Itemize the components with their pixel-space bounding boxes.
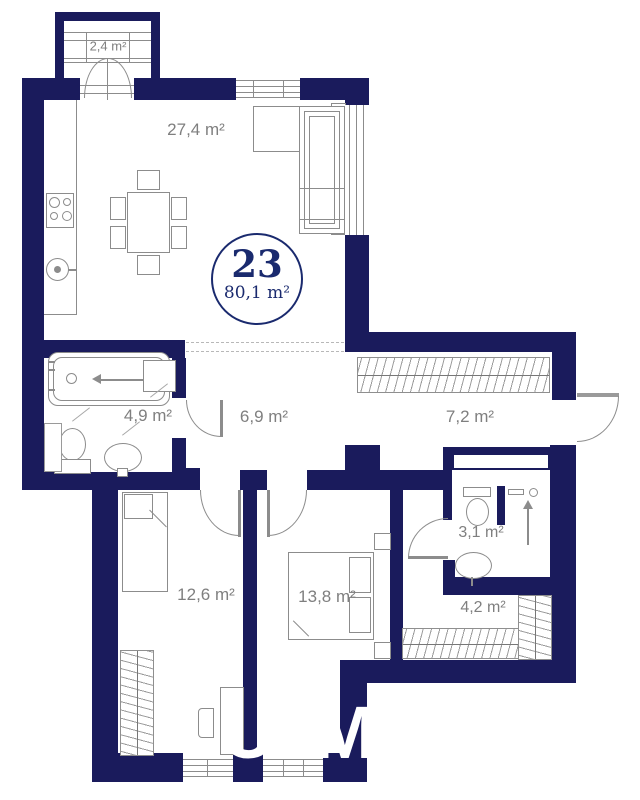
bathtub-arrowhead <box>92 374 101 384</box>
wall <box>134 78 238 100</box>
room-label-living: 27,4 m² <box>167 120 225 140</box>
kitchen-sink-drain <box>54 266 61 273</box>
wall <box>550 445 576 590</box>
room-label-bedroom2: 13,8 m² <box>298 587 356 607</box>
window <box>345 105 369 235</box>
wall <box>443 577 552 595</box>
window <box>236 78 300 100</box>
wardrobe-hatched <box>518 595 552 660</box>
wall <box>185 468 200 490</box>
wall <box>552 332 576 400</box>
wall <box>92 753 183 782</box>
room-label-wc: 3,1 m² <box>458 524 503 542</box>
shower-arrow <box>527 505 529 545</box>
room-label-hallway: 6,9 m² <box>240 407 288 427</box>
wall-niche <box>454 455 548 468</box>
wall <box>172 438 186 472</box>
tile-mark <box>72 407 90 421</box>
room-label-corridor: 7,2 m² <box>446 407 494 427</box>
glazing-mullion <box>86 32 87 62</box>
window-line <box>349 105 350 235</box>
bathtub-tap <box>49 361 55 363</box>
wardrobe-rail <box>535 596 536 659</box>
chair <box>171 226 187 249</box>
entrance-door-arc <box>577 396 619 442</box>
window-line <box>236 86 300 87</box>
nightstand <box>374 533 391 550</box>
shower-fitting <box>508 489 524 495</box>
washbasin-tap <box>471 577 473 586</box>
wall <box>307 470 443 490</box>
bedroom2-door-leaf <box>267 490 270 537</box>
watermark-letter: M <box>314 696 376 770</box>
sofa-seam <box>299 188 345 189</box>
wall <box>443 447 452 520</box>
bedroom1-door-leaf <box>238 490 241 537</box>
apartment-number-badge: 23 80,1 m² <box>211 233 303 325</box>
dining-table <box>127 192 170 253</box>
bed-pillow <box>124 494 153 519</box>
shower-arrowhead <box>523 500 533 509</box>
sofa-cushion <box>309 116 335 224</box>
burner <box>49 197 60 208</box>
bedroom1-door-arc <box>200 490 239 536</box>
wardrobe-rail <box>137 651 138 755</box>
apartment-number: 23 <box>213 246 301 283</box>
room-label-closet: 4,2 m² <box>460 599 505 617</box>
washbasin <box>455 552 492 579</box>
wall <box>345 235 369 345</box>
glazing-line <box>64 32 151 33</box>
wall <box>22 472 185 490</box>
floor-plan: 2,4 m² 27,4 m² 4,9 m² 6,9 m² 7,2 m² 3,1 … <box>0 0 640 800</box>
wardrobe-hatched <box>357 357 550 393</box>
window-mullion <box>283 759 284 777</box>
kitchen-tap <box>68 269 77 271</box>
wc-door-arc <box>408 518 448 558</box>
wall <box>92 490 118 753</box>
wardrobe-hatched <box>120 650 154 756</box>
chair <box>110 197 126 220</box>
burner <box>63 198 71 206</box>
washbasin-tap <box>117 468 128 477</box>
window-line <box>236 97 300 98</box>
bedroom2-door-arc <box>268 490 307 536</box>
wall <box>345 332 552 352</box>
balcony-door-arc <box>108 58 132 98</box>
window-line <box>356 105 357 235</box>
washing-machine <box>143 360 176 392</box>
toilet-bowl <box>59 428 86 461</box>
wall <box>497 486 505 525</box>
wall <box>55 12 160 21</box>
wardrobe-rail <box>358 375 549 376</box>
window-line <box>236 92 300 93</box>
balcony-threshold <box>80 93 134 94</box>
window-line <box>263 776 323 777</box>
opening-dashed-line <box>186 342 344 343</box>
window-mullion <box>283 80 284 98</box>
room-label-bedroom1: 12,6 m² <box>177 585 235 605</box>
wall <box>22 78 44 490</box>
wc-door-leaf <box>408 556 448 559</box>
stove <box>46 193 74 228</box>
bathtub-drain <box>66 373 77 384</box>
toilet-bowl <box>466 498 489 526</box>
window-line <box>236 80 300 81</box>
sofa-seam <box>299 219 345 220</box>
balcony-door-arc <box>84 58 108 98</box>
toilet-tank <box>463 487 491 497</box>
bathtub-tap <box>49 369 55 371</box>
shower-fitting <box>529 488 538 497</box>
bathtub-tap <box>49 389 55 391</box>
room-label-bathroom: 4,9 m² <box>124 406 172 426</box>
opening-dashed-line <box>186 351 344 352</box>
window-mullion <box>207 759 208 777</box>
glazing-mullion <box>129 32 130 62</box>
window-line <box>363 105 364 235</box>
balcony-threshold <box>80 85 134 86</box>
watermark-letter: U <box>222 696 275 770</box>
wall <box>240 470 267 490</box>
burner <box>50 212 58 220</box>
window-line <box>183 776 233 777</box>
desk-chair <box>198 708 214 738</box>
wall <box>345 90 369 105</box>
burner <box>62 211 72 221</box>
wall <box>340 660 576 683</box>
window-mullion <box>303 759 304 777</box>
chair <box>171 197 187 220</box>
chair <box>137 170 160 190</box>
wall-niche <box>44 423 62 472</box>
nightstand <box>374 642 391 659</box>
window-mullion <box>253 80 254 98</box>
bathroom-door-arc <box>186 400 221 437</box>
room-label-balcony: 2,4 m² <box>90 39 127 54</box>
chair <box>137 255 160 275</box>
bathroom-door-leaf <box>220 400 223 437</box>
apartment-total-area: 80,1 m² <box>213 283 301 303</box>
chair <box>110 226 126 249</box>
sofa-chaise <box>253 106 301 152</box>
